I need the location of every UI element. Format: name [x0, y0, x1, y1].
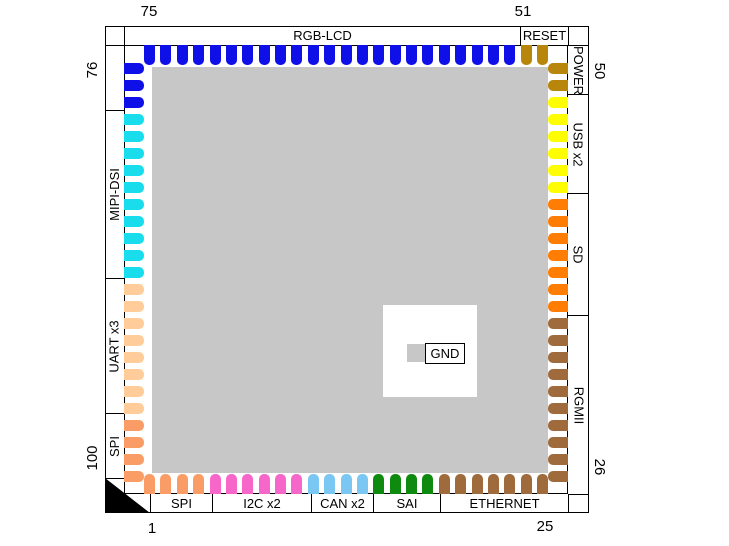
pin: [124, 437, 144, 448]
band-cell-spi-left: SPI: [105, 413, 124, 478]
pin: [341, 474, 352, 494]
pin: [275, 474, 286, 494]
pin: [390, 45, 401, 65]
band-label-i2c: I2C x2: [243, 496, 281, 511]
pin: [226, 45, 237, 65]
pin: [504, 45, 515, 65]
band-cell-can: CAN x2: [311, 494, 373, 513]
pin: [275, 45, 286, 65]
pin: [548, 352, 568, 363]
pin: [259, 45, 270, 65]
pin: [210, 45, 221, 65]
pin: [357, 474, 368, 494]
corner-cell-right-bottom: [568, 494, 589, 513]
pin: [537, 45, 548, 65]
pin-number-51: 51: [503, 4, 543, 20]
pin: [308, 45, 319, 65]
pin: [193, 45, 204, 65]
pin: [548, 131, 568, 142]
pin: [341, 45, 352, 65]
pin: [548, 114, 568, 125]
pin: [226, 474, 237, 494]
pin: [242, 45, 253, 65]
pin: [548, 437, 568, 448]
pin: [521, 474, 532, 494]
pin: [324, 45, 335, 65]
corner-cell-top-right: [568, 26, 589, 45]
pin: [124, 420, 144, 431]
pin: [439, 474, 450, 494]
band-label-spi-bottom: SPI: [171, 496, 192, 511]
pin: [124, 199, 144, 210]
pin: [548, 216, 568, 227]
band-label-ethernet: ETHERNET: [469, 496, 539, 511]
pin: [548, 369, 568, 380]
band-label-rgb-lcd: RGB-LCD: [293, 28, 352, 43]
pin: [124, 318, 144, 329]
band-cell-ethernet: ETHERNET: [440, 494, 568, 513]
pin: [124, 267, 144, 278]
pins-left: [124, 45, 144, 494]
pin: [124, 386, 144, 397]
pin: [259, 474, 270, 494]
pin: [177, 45, 188, 65]
band-cell-reset: RESET: [520, 26, 568, 45]
pin: [144, 45, 155, 65]
pin: [373, 474, 384, 494]
pin: [521, 45, 532, 65]
pin: [124, 352, 144, 363]
legend-gnd-box: GND: [425, 343, 465, 364]
pin: [548, 80, 568, 91]
band-cell-power: POWER: [568, 45, 589, 94]
pin: [488, 474, 499, 494]
pinout-diagram: RGB-LCD RESET SPI I2C x2 CAN x2 SAI ETHE…: [0, 0, 729, 546]
pin: [548, 318, 568, 329]
legend-box: GND: [383, 305, 477, 397]
pin: [124, 335, 144, 346]
pin: [291, 474, 302, 494]
band-label-uart: UART x3: [107, 320, 122, 372]
pin: [177, 474, 188, 494]
pin: [291, 45, 302, 65]
band-cell-i2c: I2C x2: [212, 494, 311, 513]
pin: [548, 165, 568, 176]
legend-gnd-label: GND: [431, 346, 460, 361]
pin: [124, 131, 144, 142]
pins-right: [548, 45, 568, 494]
pin: [124, 250, 144, 261]
pin: [160, 474, 171, 494]
pin: [124, 63, 144, 74]
pin: [357, 45, 368, 65]
pin-number-26: 26: [591, 447, 607, 487]
band-cell-mipi-dsi: MIPI-DSI: [105, 110, 124, 278]
pin: [242, 474, 253, 494]
pin: [373, 45, 384, 65]
pin: [210, 474, 221, 494]
band-cell-sd: SD: [568, 193, 589, 315]
band-label-reset: RESET: [523, 28, 566, 43]
pin: [548, 403, 568, 414]
band-cell-sai: SAI: [373, 494, 440, 513]
pin: [548, 471, 568, 482]
pin: [124, 471, 144, 482]
pin: [548, 454, 568, 465]
pin: [124, 403, 144, 414]
band-cell-spi-bottom: SPI: [150, 494, 212, 513]
band-label-mipi-dsi: MIPI-DSI: [107, 168, 122, 221]
band-label-sai: SAI: [397, 496, 418, 511]
pin: [124, 165, 144, 176]
pin: [124, 80, 144, 91]
pin-number-76: 76: [85, 50, 101, 90]
band-label-sd: SD: [571, 245, 586, 263]
band-label-rgmii: RGMII: [571, 386, 586, 424]
band-cell-uart: UART x3: [105, 278, 124, 413]
pin: [472, 474, 483, 494]
band-cell-left-unlabeled: [105, 45, 124, 110]
pin: [406, 45, 417, 65]
pin: [504, 474, 515, 494]
legend-swatch: [407, 344, 425, 362]
pin: [548, 420, 568, 431]
band-label-spi-left: SPI: [107, 436, 122, 457]
pin: [548, 148, 568, 159]
pin: [124, 233, 144, 244]
pin: [455, 45, 466, 65]
pin-number-1: 1: [132, 521, 172, 537]
band-cell-rgmii: RGMII: [568, 315, 589, 494]
pin: [124, 301, 144, 312]
pin: [548, 301, 568, 312]
band-label-usb: USB x2: [571, 122, 586, 166]
pin-number-25: 25: [525, 519, 565, 535]
pin: [548, 284, 568, 295]
band-cell-usb: USB x2: [568, 94, 589, 193]
pin: [193, 474, 204, 494]
pin: [548, 97, 568, 108]
pin-number-75: 75: [129, 4, 169, 20]
band-label-power: POWER: [571, 45, 586, 94]
pin: [548, 233, 568, 244]
pin-number-100: 100: [85, 438, 101, 478]
pin: [422, 45, 433, 65]
pin: [124, 284, 144, 295]
pin: [124, 369, 144, 380]
pin: [548, 386, 568, 397]
pin: [548, 335, 568, 346]
pin: [124, 454, 144, 465]
pin: [488, 45, 499, 65]
pin: [537, 474, 548, 494]
pin: [124, 182, 144, 193]
pins-top: [124, 45, 568, 65]
pin-ring-inner-outline: [124, 45, 568, 494]
pin: [124, 216, 144, 227]
pin: [548, 182, 568, 193]
pin: [324, 474, 335, 494]
pin: [390, 474, 401, 494]
pin: [406, 474, 417, 494]
pin: [124, 148, 144, 159]
pin: [124, 97, 144, 108]
pin: [548, 63, 568, 74]
pin: [144, 474, 155, 494]
pin-number-50: 50: [591, 51, 607, 91]
pin: [548, 267, 568, 278]
pin: [160, 45, 171, 65]
pin: [124, 114, 144, 125]
pins-bottom: [124, 474, 568, 494]
pin: [439, 45, 450, 65]
pin: [308, 474, 319, 494]
band-label-can: CAN x2: [320, 496, 365, 511]
pin: [548, 199, 568, 210]
pin: [548, 250, 568, 261]
band-cell-rgb-lcd: RGB-LCD: [124, 26, 520, 45]
pin: [455, 474, 466, 494]
pin: [472, 45, 483, 65]
pin: [422, 474, 433, 494]
